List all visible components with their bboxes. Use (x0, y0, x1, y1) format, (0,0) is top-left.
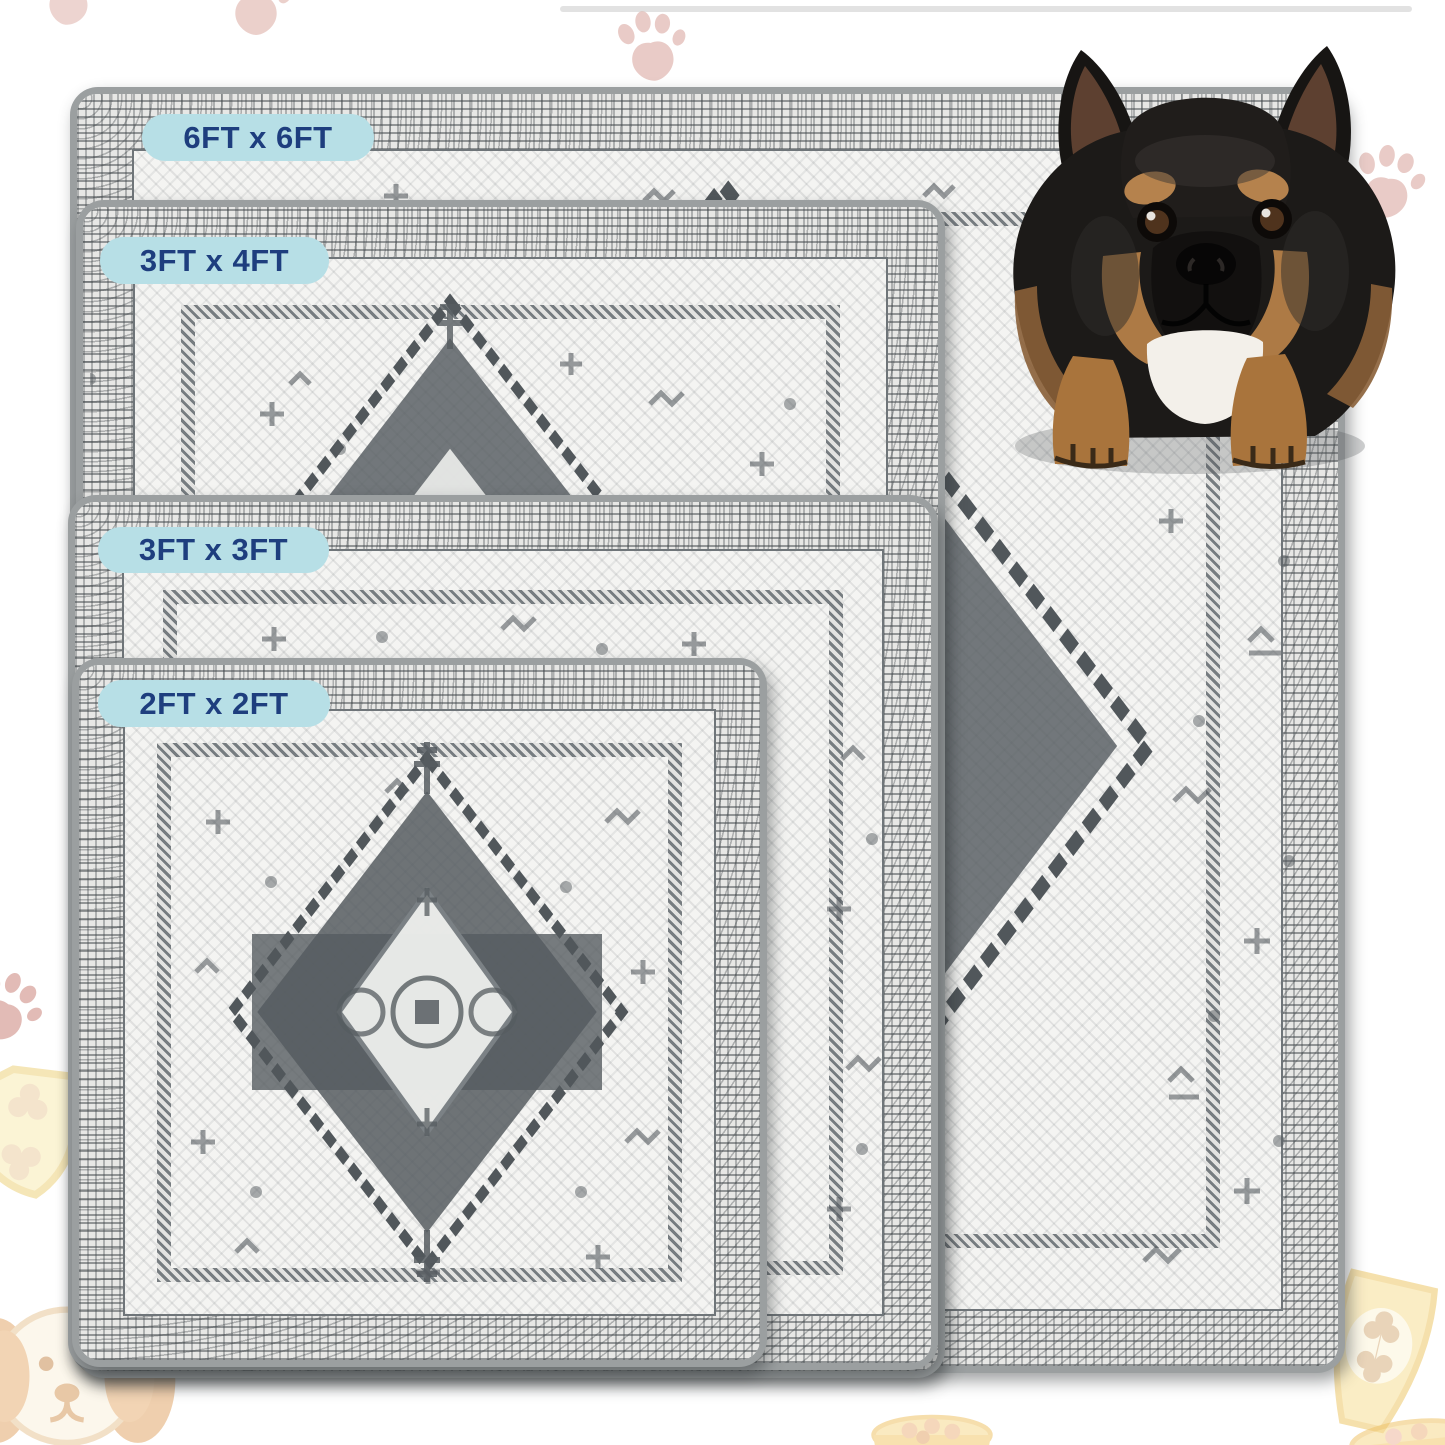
size-badge-3x3: 3FT x 3FT (98, 527, 329, 573)
size-badge-label: 6FT x 6FT (183, 120, 332, 156)
paw-print-icon (29, 0, 112, 35)
paw-print-icon (607, 3, 695, 89)
size-badge-2x2: 2FT x 2FT (98, 680, 330, 727)
paw-print-icon (0, 958, 56, 1056)
rug-2ft-x-2ft (72, 658, 767, 1367)
food-bowl-icon (1335, 1404, 1445, 1445)
food-bowl-icon (862, 1408, 1002, 1445)
size-badge-label: 2FT x 2FT (139, 686, 288, 722)
size-badge-6x6: 6FT x 6FT (142, 114, 374, 161)
size-badge-label: 3FT x 3FT (139, 532, 288, 568)
rug-inner-guard-band (157, 743, 682, 1282)
size-badge-3x4: 3FT x 4FT (100, 237, 329, 284)
french-bulldog-photo (985, 26, 1422, 478)
background-edge-line (560, 6, 1412, 12)
size-badge-label: 3FT x 4FT (140, 243, 289, 279)
rug-size-comparison-image: 6FT x 6FT 3FT x 4FT 3FT x 3FT 2FT x 2FT (0, 0, 1445, 1445)
paw-print-icon (218, 0, 294, 38)
